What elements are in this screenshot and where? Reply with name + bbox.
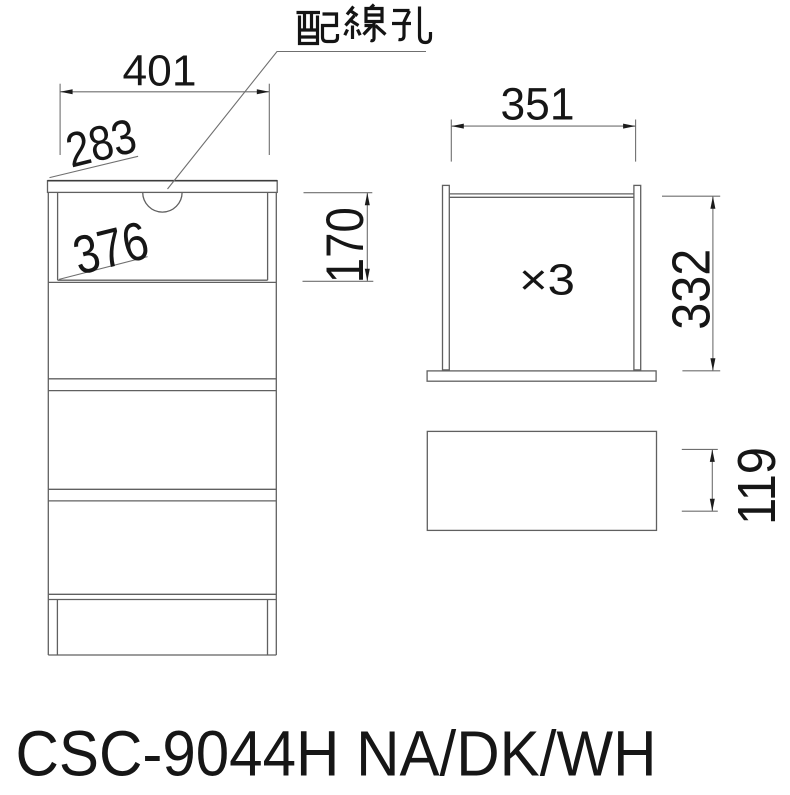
svg-text:376: 376 [67, 210, 154, 286]
svg-text:170: 170 [316, 207, 375, 283]
svg-text:CSC-9044H NA/DK/WH: CSC-9044H NA/DK/WH [16, 718, 657, 790]
svg-text:332: 332 [661, 249, 721, 330]
svg-text:401: 401 [123, 47, 197, 96]
svg-text:283: 283 [61, 109, 142, 178]
svg-text:119: 119 [727, 447, 787, 525]
svg-text:×3: ×3 [519, 256, 575, 305]
svg-text:351: 351 [501, 79, 575, 130]
